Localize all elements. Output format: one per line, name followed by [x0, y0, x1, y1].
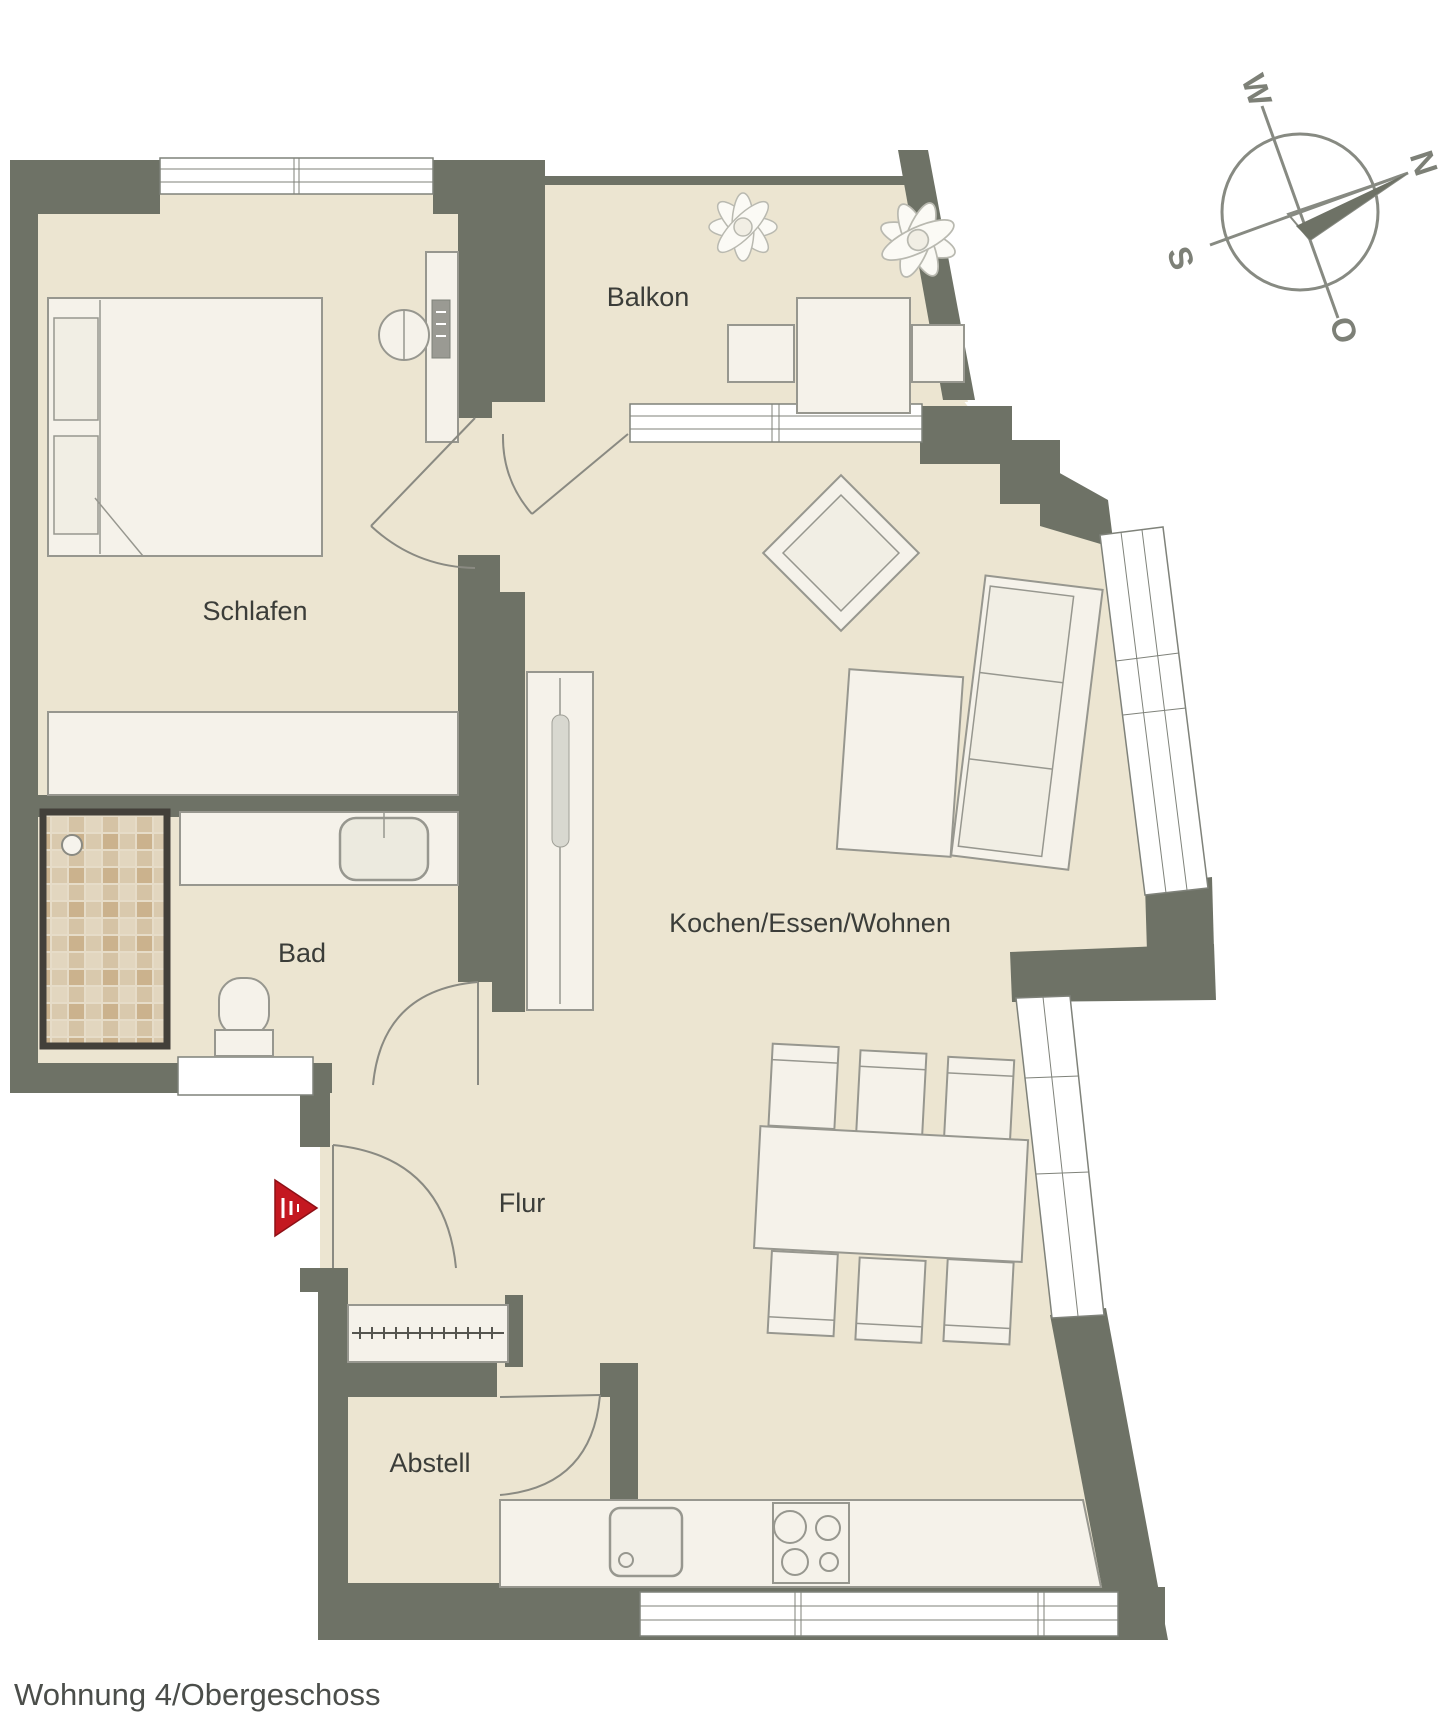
chair	[944, 1057, 1014, 1142]
toilet-tank	[215, 1030, 273, 1056]
wall-bed-right-upper	[458, 192, 492, 418]
entrance-arrow-icon	[275, 1180, 317, 1236]
wall-entry-upper	[300, 1093, 330, 1147]
desk-device	[432, 300, 450, 358]
label-flur: Flur	[499, 1188, 546, 1218]
wall-bath-right	[458, 817, 492, 982]
wall-step-1	[920, 406, 1012, 464]
floorplan-drawing: N S W O Schlafen Balkon Bad Flur Abstell…	[0, 0, 1441, 1731]
plant	[709, 193, 777, 261]
wall-living-left	[492, 592, 525, 1012]
chair	[856, 1050, 926, 1135]
chair	[768, 1251, 838, 1336]
tall-unit-handle	[552, 715, 569, 847]
balcony-chair	[728, 325, 794, 382]
wall-abstell-left	[318, 1270, 348, 1600]
balcony-chair	[912, 325, 964, 382]
label-schlafen: Schlafen	[202, 596, 307, 626]
bath-sill	[178, 1057, 313, 1095]
floorplan-page: N S W O Schlafen Balkon Bad Flur Abstell…	[0, 0, 1441, 1731]
pillow	[54, 436, 98, 534]
bedroom-wardrobe	[48, 712, 458, 795]
label-bad: Bad	[278, 938, 326, 968]
shower-head	[62, 835, 82, 855]
pillow	[54, 318, 98, 420]
balcony-railing	[545, 176, 907, 185]
label-balkon: Balkon	[607, 282, 690, 312]
balcony-table	[797, 298, 910, 413]
label-abstell: Abstell	[389, 1448, 470, 1478]
wall-left	[10, 160, 38, 1070]
page-title: Wohnung 4/Obergeschoss	[14, 1677, 381, 1712]
compass-n: N	[1403, 146, 1441, 180]
hall-furniture	[348, 1305, 508, 1362]
compass-w: W	[1235, 69, 1280, 111]
coffee-table	[837, 669, 963, 857]
window-bedroom	[160, 158, 433, 194]
dining-table	[754, 1126, 1028, 1262]
chair	[943, 1259, 1013, 1344]
wall-bay-bottom	[1010, 944, 1216, 1002]
wall-abstell-top	[318, 1363, 497, 1397]
window-kitchen	[640, 1592, 1118, 1636]
chair	[855, 1257, 925, 1342]
dining-set	[750, 1043, 1033, 1348]
compass-rose-icon: N S W O	[1160, 69, 1441, 347]
toilet-bowl	[219, 978, 269, 1036]
chair	[768, 1044, 838, 1129]
label-wohnen: Kochen/Essen/Wohnen	[669, 908, 951, 938]
compass-o: O	[1322, 312, 1365, 348]
compass-s: S	[1160, 242, 1202, 274]
wall-abstell-right	[610, 1363, 638, 1503]
